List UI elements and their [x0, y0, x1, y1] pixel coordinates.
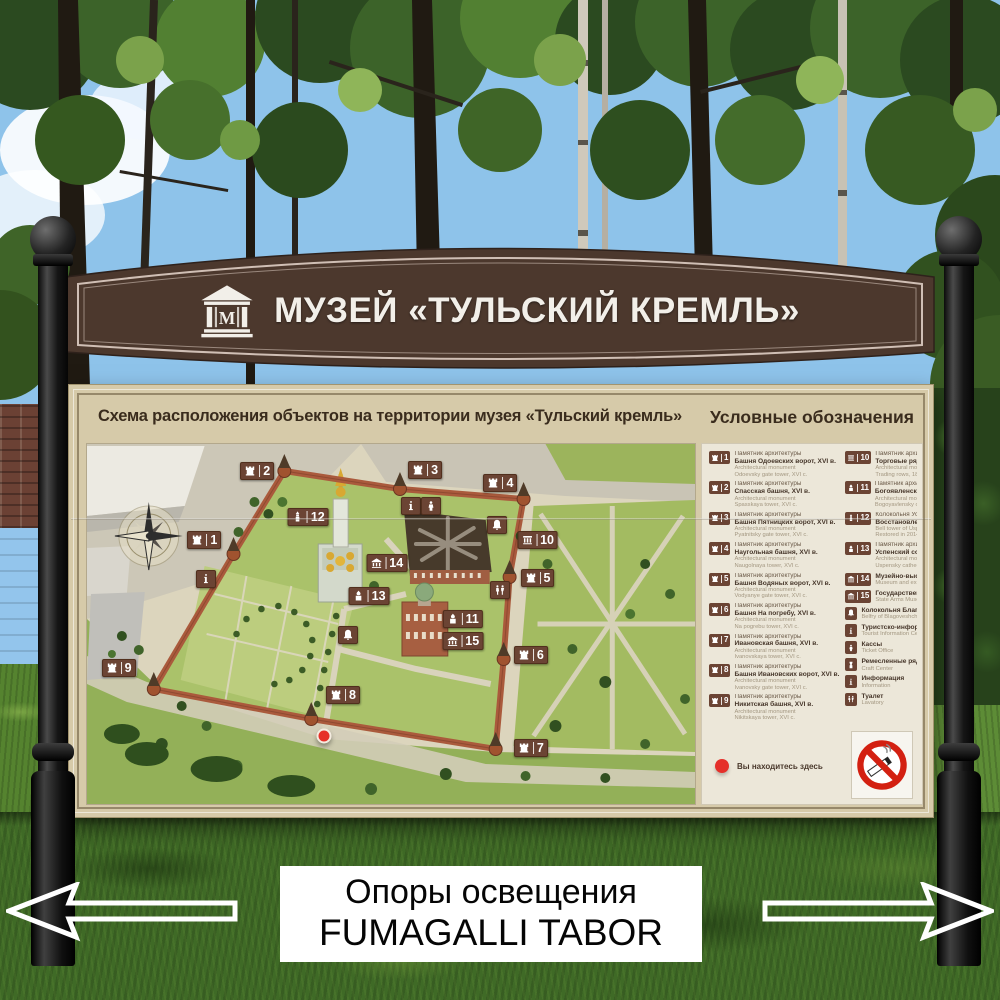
- church-icon: [353, 590, 365, 602]
- legend-text: Памятник архитектурыБашня Ивановских вор…: [734, 664, 839, 691]
- legend-title: Условные обозначения: [697, 407, 927, 428]
- you-are-here-icon: [715, 759, 729, 773]
- caption-line1: Опоры освещения: [345, 873, 637, 912]
- post-cap: [33, 254, 73, 266]
- tower-icon: [711, 545, 719, 553]
- person-icon: [425, 500, 437, 512]
- map-you-are-here-dot: [317, 728, 332, 743]
- bell-icon: [847, 609, 855, 617]
- map-marker-info: [196, 570, 216, 588]
- map-marker-5: 5: [521, 569, 555, 587]
- legend-text: Памятник архитектурыНикитская башня, XVI…: [734, 694, 813, 721]
- legend-item-1: 1Памятник архитектурыБашня Одоевских вор…: [709, 451, 839, 478]
- legend-marker: [845, 624, 857, 637]
- legend-text: Памятник архитектурыТорговые ряды, 1837-…: [875, 451, 917, 478]
- svg-text:М: М: [219, 308, 236, 328]
- tower-icon: [711, 636, 719, 644]
- bell-icon: [491, 519, 503, 531]
- museum-icon: [847, 575, 855, 583]
- legend-text: ТуалетLavatory: [861, 693, 883, 707]
- legend-marker: 13: [845, 542, 871, 555]
- map-marker-bell: [338, 626, 358, 644]
- tower-icon: [711, 484, 719, 492]
- site-map: 123456789101112131415: [86, 443, 696, 805]
- legend-column-right: 10Памятник архитектурыТорговые ряды, 183…: [845, 451, 917, 732]
- columns-icon: [521, 534, 533, 546]
- craft-icon: [847, 661, 855, 669]
- legend-text: Памятник архитектурыСпасская башня, XVI …: [734, 481, 809, 508]
- legend-text: ИнформацияInformation: [861, 675, 904, 689]
- left-arrow-icon: [6, 882, 238, 942]
- museum-icon: [446, 635, 458, 647]
- legend-marker: 10: [845, 451, 871, 464]
- legend-text: Памятник архитектурыБашня Одоевских воро…: [734, 451, 835, 478]
- bell-icon: [342, 629, 354, 641]
- legend-item-4: 4Памятник архитектурыНаугольная башня, X…: [709, 542, 839, 569]
- legend-marker: [845, 675, 857, 688]
- map-marker-7: 7: [514, 739, 548, 757]
- tower-icon: [244, 465, 256, 477]
- legend-text: Музейно-выставочный комплексMuseum and e…: [875, 573, 917, 587]
- legend-text: Колокольня Благовещенской церквиBelfry o…: [861, 607, 917, 621]
- map-marker-15: 15: [442, 632, 483, 650]
- museum-portico-icon: М: [200, 284, 254, 338]
- museum-sign-title: МУЗЕЙ «ТУЛЬСКИЙ КРЕМЛЬ»: [274, 291, 800, 331]
- legend-item-11: 11Памятник архитектурыБогоявленский собо…: [845, 481, 917, 508]
- tower-icon: [525, 572, 537, 584]
- legend-item-9: 9Памятник архитектурыНикитская башня, XV…: [709, 694, 839, 721]
- no-smoking-sign: [851, 731, 913, 799]
- legend-bottom-row: Вы находитесь здесь: [709, 735, 917, 799]
- map-marker-8: 8: [326, 686, 360, 704]
- post-cap: [939, 254, 979, 266]
- legend-item-info: ИнформацияInformation: [845, 675, 917, 689]
- legend-marker: 14: [845, 573, 871, 586]
- legend-item-7: 7Памятник архитектурыИвановская башня, X…: [709, 634, 839, 661]
- tower-icon: [711, 575, 719, 583]
- legend-item-info: Туристско-информационный центрTourist In…: [845, 624, 917, 638]
- legend-text: Памятник архитектурыБашня На погребу, XV…: [734, 603, 815, 630]
- tower-icon: [106, 662, 118, 674]
- legend-text: Колокольня Успенского собораВосстановлен…: [875, 512, 917, 539]
- legend-item-person: КассыTicket Office: [845, 641, 917, 655]
- legend-item-12: 12Колокольня Успенского собораВосстановл…: [845, 512, 917, 539]
- info-icon: [200, 573, 212, 585]
- legend-item-craft: Ремесленные рядыCraft Center: [845, 658, 917, 672]
- you-are-here-legend: Вы находитесь здесь: [715, 759, 823, 773]
- map-marker-11: 11: [443, 610, 483, 628]
- no-smoking-icon: [855, 738, 909, 792]
- legend-panel: 1Памятник архитектурыБашня Одоевских вор…: [701, 443, 923, 805]
- photo-scene: М МУЗЕЙ «ТУЛЬСКИЙ КРЕМЛЬ» Схема располож…: [0, 0, 1000, 1000]
- legend-text: Памятник архитектурыБашня Пятницких воро…: [734, 512, 835, 539]
- map-marker-1: 1: [187, 531, 221, 549]
- church-icon: [847, 545, 855, 553]
- map-marker-person: [421, 497, 441, 515]
- legend-column-left: 1Памятник архитектурыБашня Одоевских вор…: [709, 451, 839, 732]
- you-are-here-label: Вы находитесь здесь: [737, 762, 823, 771]
- legend-marker: 6: [709, 603, 730, 616]
- tower-icon: [191, 534, 203, 546]
- church-icon: [447, 613, 459, 625]
- legend-item-14: 14Музейно-выставочный комплексMuseum and…: [845, 573, 917, 587]
- legend-marker: 7: [709, 634, 730, 647]
- info-icon: [847, 627, 855, 635]
- tower-icon: [711, 666, 719, 674]
- legend-text: КассыTicket Office: [861, 641, 893, 655]
- legend-item-8: 8Памятник архитектурыБашня Ивановских во…: [709, 664, 839, 691]
- board-panel-seam: [71, 518, 931, 520]
- legend-item-13: 13Памятник архитектурыУспенский собор, 1…: [845, 542, 917, 569]
- map-board: Схема расположения объектов на территори…: [68, 384, 934, 818]
- legend-item-6: 6Памятник архитектурыБашня На погребу, X…: [709, 603, 839, 630]
- map-marker-6: 6: [514, 646, 548, 664]
- legend-item-bell: Колокольня Благовещенской церквиBelfry o…: [845, 607, 917, 621]
- map-title: Схема расположения объектов на территори…: [87, 407, 693, 426]
- legend-item-5: 5Памятник архитектурыБашня Водяных ворот…: [709, 573, 839, 600]
- legend-marker: [845, 658, 857, 671]
- tower-icon: [518, 742, 530, 754]
- wc-icon: [494, 584, 506, 596]
- legend-marker: 1: [709, 451, 730, 464]
- legend-item-wc: ТуалетLavatory: [845, 693, 917, 707]
- legend-marker: 15: [845, 590, 871, 603]
- legend-marker: 4: [709, 542, 730, 555]
- map-marker-13: 13: [349, 587, 390, 605]
- post-collar: [938, 743, 980, 761]
- museum-icon: [370, 557, 382, 569]
- tower-icon: [330, 689, 342, 701]
- legend-text: Ремесленные рядыCraft Center: [861, 658, 917, 672]
- tower-icon: [412, 464, 424, 476]
- legend-marker: 2: [709, 481, 730, 494]
- tower-icon: [518, 649, 530, 661]
- caption-line2: FUMAGALLI TABOR: [319, 912, 663, 955]
- left-lighting-post: [38, 262, 68, 966]
- caption-box: Опоры освещения FUMAGALLI TABOR: [280, 866, 702, 962]
- legend-marker: 11: [845, 481, 870, 494]
- legend-item-10: 10Памятник архитектурыТорговые ряды, 183…: [845, 451, 917, 478]
- museum-header-sign: М МУЗЕЙ «ТУЛЬСКИЙ КРЕМЛЬ»: [64, 244, 936, 372]
- map-marker-10: 10: [517, 531, 558, 549]
- map-marker-info: [401, 497, 421, 515]
- tower-icon: [711, 454, 719, 462]
- map-marker-4: 4: [483, 474, 517, 492]
- map-markers-layer: 123456789101112131415: [87, 444, 695, 804]
- legend-marker: [845, 693, 857, 706]
- map-marker-wc: [490, 581, 510, 599]
- right-arrow-icon: [762, 882, 994, 942]
- info-icon: [847, 678, 855, 686]
- person-icon: [847, 644, 855, 652]
- map-marker-9: 9: [102, 659, 136, 677]
- legend-text: Туристско-информационный центрTourist In…: [861, 624, 917, 638]
- map-marker-2: 2: [240, 462, 274, 480]
- legend-item-3: 3Памятник архитектурыБашня Пятницких вор…: [709, 512, 839, 539]
- columns-icon: [847, 454, 855, 462]
- legend-text: Государственный музей оружияState Arms M…: [875, 590, 917, 604]
- legend-marker: 9: [709, 694, 730, 707]
- post-collar: [32, 743, 74, 761]
- map-marker-14: 14: [366, 554, 407, 572]
- wc-icon: [847, 695, 855, 703]
- legend-marker: 5: [709, 573, 730, 586]
- museum-icon: [847, 592, 855, 600]
- legend-item-2: 2Памятник архитектурыСпасская башня, XVI…: [709, 481, 839, 508]
- legend-marker: 8: [709, 664, 730, 677]
- tower-icon: [487, 477, 499, 489]
- legend-marker: [845, 607, 857, 620]
- tower-icon: [711, 606, 719, 614]
- right-lighting-post: [944, 262, 974, 966]
- legend-text: Памятник архитектурыИвановская башня, XV…: [734, 634, 818, 661]
- church-icon: [847, 484, 855, 492]
- legend-marker: [845, 641, 857, 654]
- legend-item-15: 15Государственный музей оружияState Arms…: [845, 590, 917, 604]
- legend-text: Памятник архитектурыБашня Водяных ворот,…: [734, 573, 830, 600]
- legend-text: Памятник архитектурыБогоявленский собор,…: [875, 481, 917, 508]
- info-icon: [405, 500, 417, 512]
- legend-text: Памятник архитектурыНаугольная башня, XV…: [734, 542, 817, 569]
- legend-text: Памятник архитектурыУспенский собор, 176…: [875, 542, 917, 569]
- map-marker-3: 3: [408, 461, 442, 479]
- tower-icon: [711, 697, 719, 705]
